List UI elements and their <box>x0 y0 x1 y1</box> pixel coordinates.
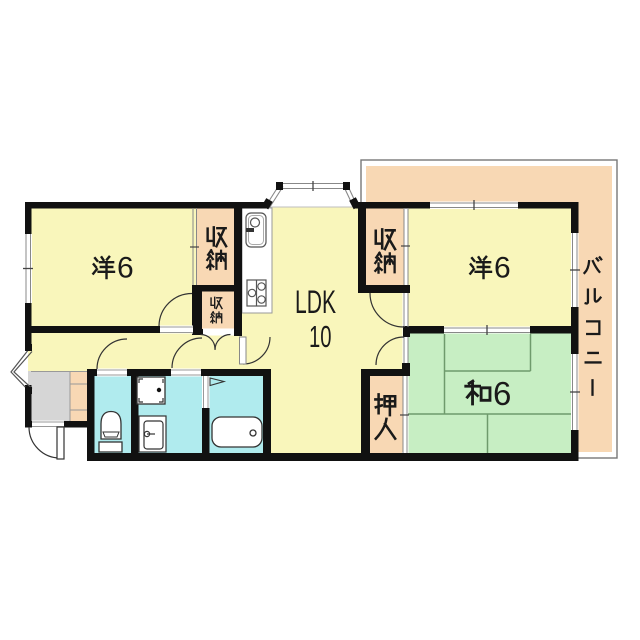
svg-text:LDK: LDK <box>295 284 336 320</box>
svg-text:6: 6 <box>117 252 134 285</box>
svg-text:10: 10 <box>309 319 332 354</box>
svg-text:6: 6 <box>494 252 511 285</box>
svg-text:6: 6 <box>493 375 511 412</box>
